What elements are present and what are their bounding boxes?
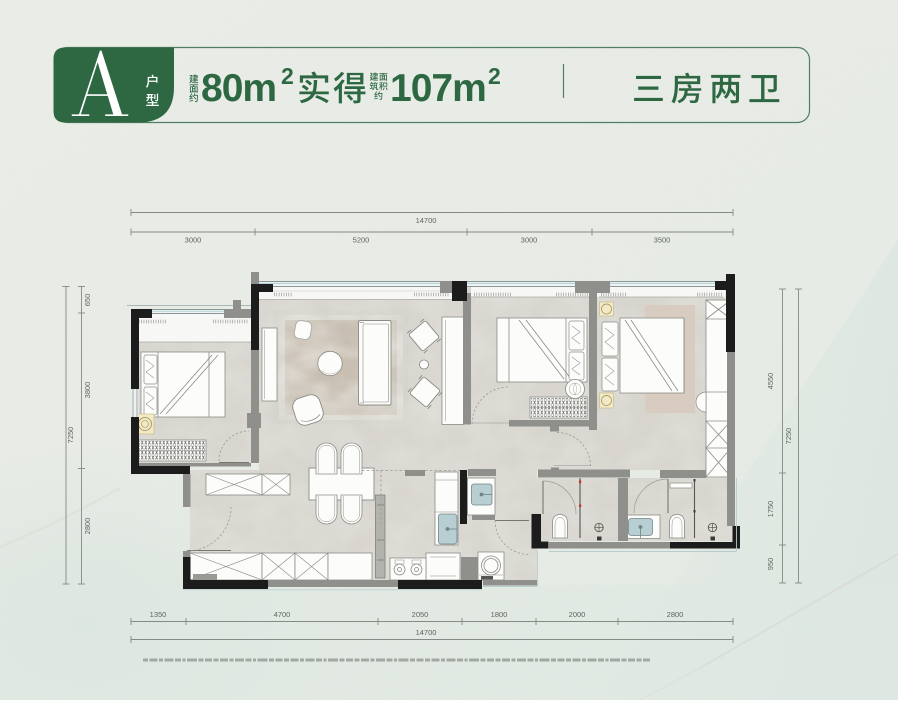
svg-text:80m: 80m bbox=[201, 67, 276, 110]
svg-text:1800: 1800 bbox=[491, 610, 508, 619]
svg-text:3000: 3000 bbox=[185, 236, 202, 245]
svg-text:3000: 3000 bbox=[521, 236, 538, 245]
svg-text:3800: 3800 bbox=[83, 382, 92, 399]
svg-text:4700: 4700 bbox=[274, 610, 291, 619]
svg-text:650: 650 bbox=[83, 294, 92, 307]
svg-text:2: 2 bbox=[281, 63, 294, 89]
svg-text:950: 950 bbox=[766, 558, 775, 571]
svg-text:14700: 14700 bbox=[416, 628, 437, 637]
svg-text:107m: 107m bbox=[390, 67, 486, 110]
svg-text:7250: 7250 bbox=[66, 427, 75, 444]
svg-text:14700: 14700 bbox=[416, 216, 437, 225]
svg-text:7250: 7250 bbox=[784, 428, 793, 445]
svg-text:2: 2 bbox=[488, 63, 501, 89]
svg-text:1750: 1750 bbox=[766, 501, 775, 518]
svg-text:3500: 3500 bbox=[654, 236, 671, 245]
svg-text:2800: 2800 bbox=[667, 610, 684, 619]
svg-text:5200: 5200 bbox=[353, 236, 370, 245]
svg-text:2050: 2050 bbox=[412, 610, 429, 619]
svg-text:4550: 4550 bbox=[766, 373, 775, 390]
svg-text:2000: 2000 bbox=[569, 610, 586, 619]
svg-text:1350: 1350 bbox=[150, 610, 167, 619]
svg-text:2800: 2800 bbox=[83, 518, 92, 535]
